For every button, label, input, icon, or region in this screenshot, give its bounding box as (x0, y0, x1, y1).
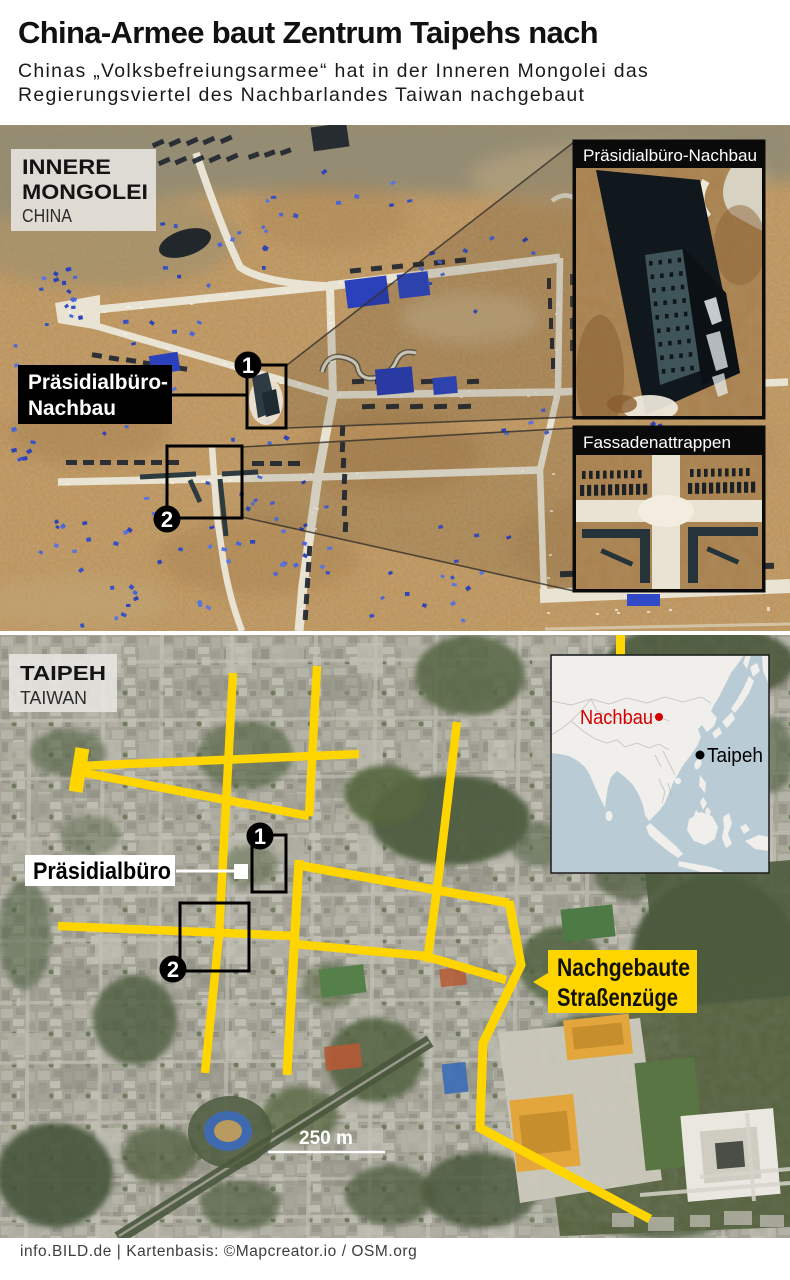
svg-text:Nachgebaute: Nachgebaute (557, 954, 690, 982)
svg-text:2: 2 (167, 957, 179, 982)
svg-text:TAIPEH: TAIPEH (20, 663, 106, 685)
svg-text:250 m: 250 m (299, 1128, 353, 1149)
svg-text:Taipeh: Taipeh (707, 745, 763, 767)
svg-text:2: 2 (161, 507, 173, 532)
svg-text:INNERE: INNERE (22, 156, 111, 179)
svg-text:Präsidialbüro: Präsidialbüro (33, 858, 171, 885)
svg-text:1: 1 (242, 353, 254, 378)
svg-text:Nachbau: Nachbau (580, 707, 653, 729)
svg-text:TAIWAN: TAIWAN (20, 688, 87, 708)
svg-text:Präsidialbüro-: Präsidialbüro- (28, 371, 168, 394)
svg-text:Nachbau: Nachbau (28, 397, 116, 420)
svg-text:Präsidialbüro-Nachbau: Präsidialbüro-Nachbau (583, 146, 757, 165)
svg-text:Fassadenattrappen: Fassadenattrappen (583, 433, 731, 452)
svg-text:MONGOLEI: MONGOLEI (22, 181, 148, 204)
svg-text:CHINA: CHINA (22, 206, 72, 226)
svg-text:1: 1 (254, 824, 266, 849)
svg-text:Straßenzüge: Straßenzüge (557, 984, 678, 1012)
